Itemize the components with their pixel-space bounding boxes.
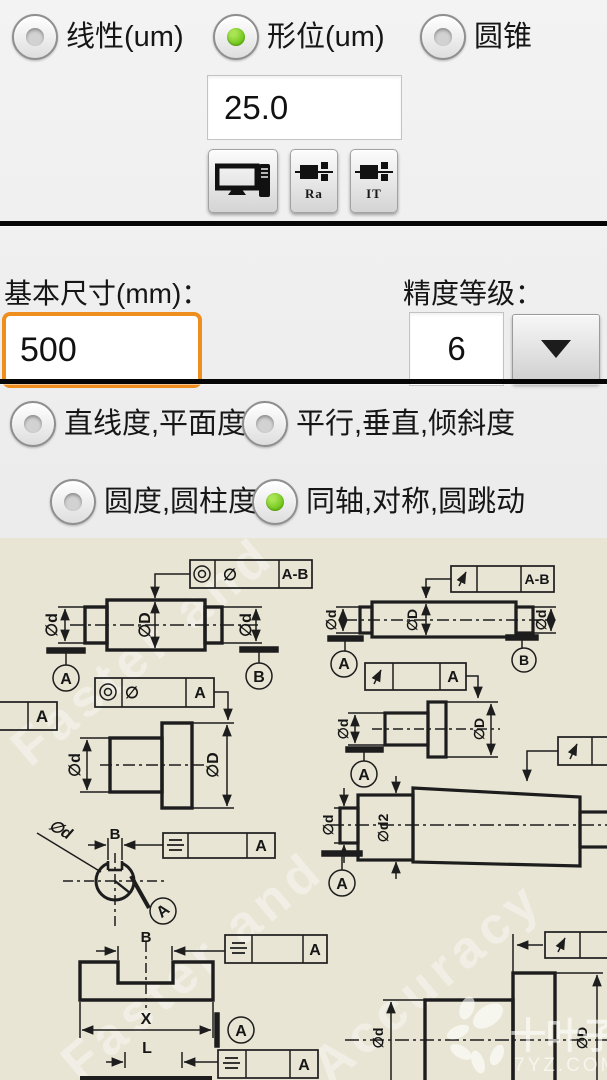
svg-text:B: B [253,669,265,686]
svg-text:∅d: ∅d [44,613,61,637]
svg-text:X: X [141,1011,152,1028]
radio-roundness-cylindricity[interactable] [50,479,96,525]
svg-text:∅d2: ∅d2 [375,814,391,843]
svg-text:∅: ∅ [223,567,237,584]
svg-text:∅d: ∅d [323,610,339,631]
radio-roundness-cylindricity-label: 圆度,圆柱度 [104,479,257,525]
svg-text:A: A [298,1057,310,1074]
svg-text:∅d: ∅d [370,1028,386,1049]
svg-text:A: A [338,656,350,673]
svg-text:∅D: ∅D [205,752,222,778]
radio-linear[interactable] [12,14,58,60]
svg-text:A: A [194,685,206,702]
svg-text:A-B: A-B [525,571,550,587]
radio-parallel-perpendicular[interactable] [242,401,288,447]
svg-text:∅d: ∅d [533,610,549,631]
svg-text:B: B [519,652,529,668]
svg-text:A: A [235,1023,247,1040]
svg-text:A: A [60,671,72,688]
radio-parallel-perpendicular-label: 平行,垂直,倾斜度 [296,401,515,447]
precision-grade-label: 精度等级： [403,272,543,312]
ra-roughness-button[interactable]: Ra [290,149,338,213]
gdt-diagram: Faster and Faster and Accuracy [0,538,607,1080]
svg-text:L: L [142,1040,152,1057]
ra-button-label: Ra [305,186,323,202]
radio-form-tolerance[interactable] [213,14,259,60]
radio-form-tolerance-label: 形位(um) [267,14,385,60]
svg-text:∅D: ∅D [404,609,420,631]
svg-text:A: A [309,942,321,959]
svg-text:∅d: ∅d [335,719,351,740]
shaft-section-icon [295,160,333,184]
radio-coaxial-symmetry-runout-label: 同轴,对称,圆跳动 [306,479,525,525]
radio-straightness-flatness-label: 直线度,平面度 [64,401,246,447]
svg-text:∅d: ∅d [67,753,84,777]
svg-text:∅D: ∅D [137,612,154,638]
watermark-brand: 十叶子 [510,1015,607,1056]
calculate-button[interactable] [208,149,278,213]
svg-text:A: A [447,669,459,686]
basic-size-input[interactable]: 500 [2,312,202,388]
tolerance-value-input[interactable]: 25.0 [207,75,402,140]
svg-text:B: B [110,826,121,843]
precision-grade-dropdown[interactable] [512,314,600,384]
it-grade-button[interactable]: IT [350,149,398,213]
svg-text:∅D: ∅D [471,718,487,740]
shaft-section-icon [355,160,393,184]
svg-text:A: A [358,767,370,784]
svg-text:∅d: ∅d [320,815,336,836]
svg-text:∅d: ∅d [238,613,255,637]
radio-cone[interactable] [420,14,466,60]
computer-icon [215,160,271,202]
svg-text:A: A [336,876,348,893]
radio-cone-label: 圆锥 [474,14,532,60]
svg-text:A: A [36,707,48,726]
basic-size-label: 基本尺寸(mm)： [4,272,209,312]
precision-grade-value[interactable]: 6 [409,312,504,386]
radio-coaxial-symmetry-runout[interactable] [252,479,298,525]
svg-text:∅: ∅ [125,685,139,702]
radio-linear-label: 线性(um) [66,14,184,60]
chevron-down-icon [541,340,571,358]
watermark-site: 7YZ.COM [514,1055,607,1076]
svg-text:A: A [255,838,267,855]
section-divider [0,221,607,226]
app-screen: 线性(um) 形位(um) 圆锥 25.0 Ra [0,0,607,1080]
svg-text:A-B: A-B [282,566,309,583]
radio-straightness-flatness[interactable] [10,401,56,447]
it-button-label: IT [366,186,382,202]
svg-text:B: B [141,929,152,946]
section-divider [0,379,607,384]
